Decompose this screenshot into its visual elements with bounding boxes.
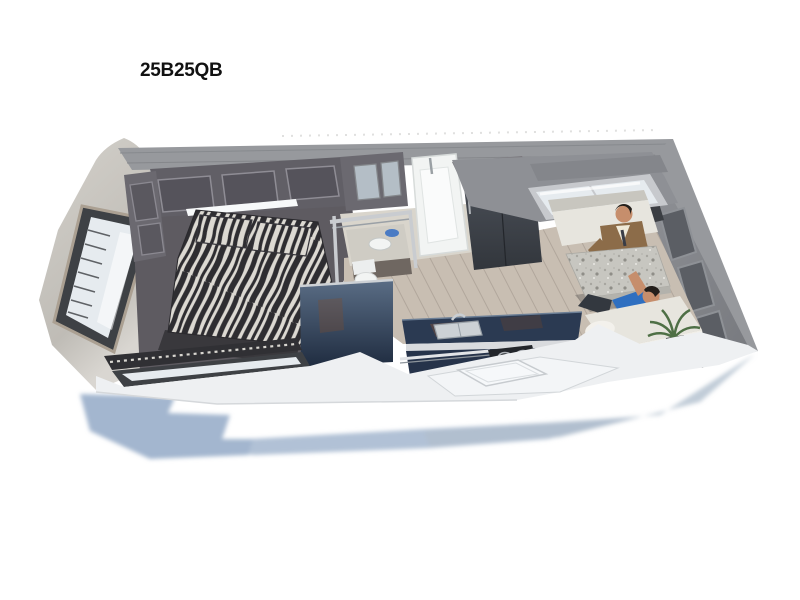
cabinet-door bbox=[158, 176, 214, 212]
warm-reflection bbox=[318, 298, 344, 333]
towel bbox=[385, 229, 399, 237]
floorplan-render bbox=[0, 0, 800, 600]
mirror-door bbox=[354, 164, 380, 200]
cabinet-door bbox=[286, 166, 339, 200]
roofline-specks bbox=[282, 130, 660, 136]
floorplan-page: 25B25QB bbox=[0, 0, 800, 600]
mirror-door bbox=[381, 161, 401, 197]
kitchen-navy-panel bbox=[300, 280, 393, 367]
mirror-column bbox=[340, 152, 408, 211]
pillow bbox=[252, 222, 312, 256]
cabinet-door bbox=[222, 171, 278, 206]
pillow bbox=[196, 215, 252, 248]
vanity-sink bbox=[369, 238, 391, 250]
